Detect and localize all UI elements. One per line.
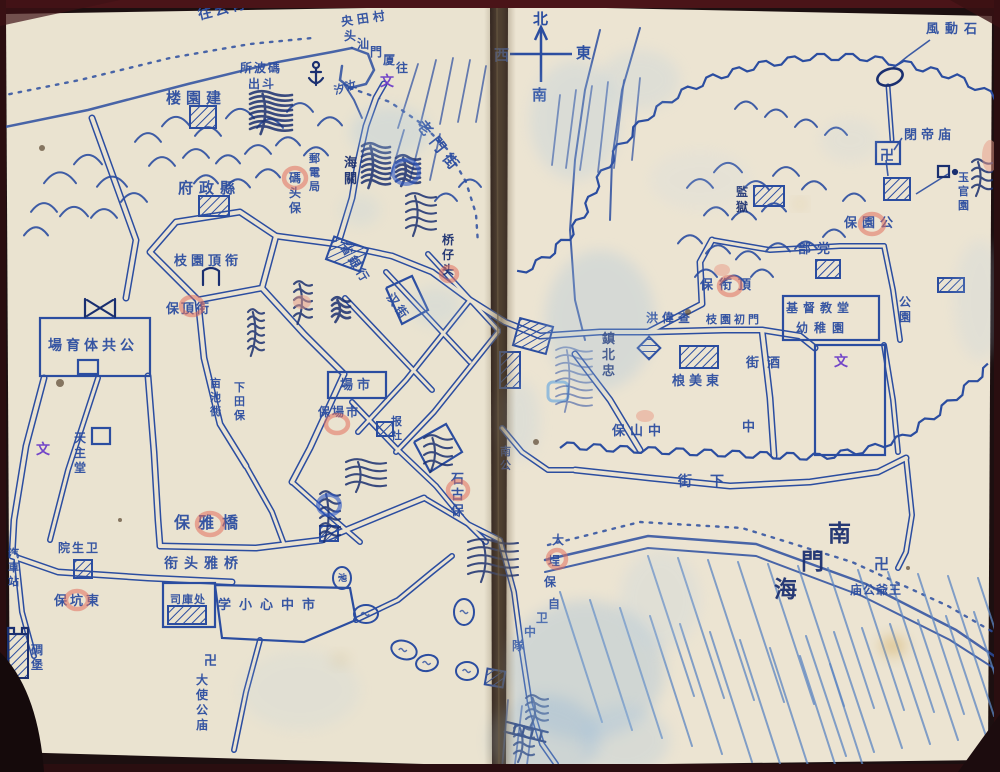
label-char: 卍: [204, 654, 217, 669]
zhongshan-bao-label: 保山中: [611, 423, 661, 439]
hatched-building: [816, 260, 840, 278]
label-char: 動: [945, 21, 958, 37]
label-char: 心: [260, 598, 273, 613]
paper-stain: [650, 150, 750, 210]
label-char: 桥: [224, 555, 239, 572]
swastika-icon-dashigong: 卍: [204, 654, 217, 669]
label-char: 大: [552, 532, 564, 547]
sports-ground-label: 場育体共公: [48, 337, 134, 354]
sqdot-icon-part: [953, 170, 957, 174]
matou-bao-label: 碼头保: [288, 170, 302, 215]
label-char: 保: [450, 503, 465, 519]
paper-stain: [580, 705, 670, 772]
label-char: 保: [843, 215, 858, 231]
label-char: 主: [74, 445, 86, 460]
label-char: 部: [798, 241, 811, 257]
hatched-building: [884, 178, 910, 200]
paper-stain: [545, 250, 655, 390]
label-char: 堂: [74, 460, 86, 475]
label-char: 公: [120, 338, 134, 354]
hatched-building: [754, 186, 784, 206]
label-char: 卫: [86, 541, 98, 555]
paper-stain: [820, 118, 880, 162]
label-char: 保: [165, 301, 180, 317]
label-char: 堂: [837, 300, 849, 315]
label-char: 門: [748, 313, 759, 326]
notebook-map-photo: 往云肖央田村头汕門厦往楼園建所波碼出斗文汐汝海關老門街郵電局碼头保府政縣桥仔头枝…: [0, 0, 1000, 772]
label-char: 庙: [196, 717, 208, 732]
label-char: 头: [344, 28, 356, 43]
paper-stain: [795, 200, 805, 208]
label-char: 酒: [767, 356, 780, 371]
label-char: 幼: [796, 320, 808, 335]
label-char: 衔: [225, 253, 238, 269]
red-smudge: [293, 295, 311, 309]
label-char: 海: [344, 155, 357, 171]
red-smudge: [636, 410, 654, 422]
label-char: 庙: [938, 127, 951, 143]
label-char: 門: [370, 45, 382, 59]
label-char: 官: [958, 184, 969, 198]
label-char: 池: [338, 572, 347, 584]
paper-stain: [600, 50, 680, 110]
label-char: 場: [340, 377, 353, 393]
road-fill: [160, 546, 256, 548]
label-char: 保: [611, 423, 626, 439]
yuguanyuan-label: 玉官園: [958, 171, 969, 212]
label-char: 市: [357, 377, 370, 393]
label-char: 南: [828, 521, 851, 547]
label-char: 碉: [31, 643, 43, 657]
label-char: 府: [178, 179, 193, 197]
label-char: 建: [206, 89, 222, 107]
label-char: 山: [630, 423, 643, 439]
label-char: 政: [199, 179, 215, 197]
park-label: 公園: [899, 295, 911, 324]
label-char: 街: [745, 355, 759, 371]
label-char: 小: [239, 598, 252, 613]
label-char: 桹: [672, 373, 686, 389]
label-char: 督: [803, 300, 815, 315]
label-char: 文: [36, 441, 51, 458]
label-char: 村: [372, 8, 386, 25]
police-station-label-row1: 所波碼: [240, 60, 280, 75]
label-char: 保: [173, 513, 191, 532]
label-char: 公: [899, 295, 911, 309]
swastika-icon-wangye: 卍: [874, 555, 889, 573]
label-char: 頂: [208, 254, 222, 269]
post-telegraph-office-label: 郵電局: [308, 151, 320, 193]
label-char: 石: [963, 22, 977, 37]
swastika-icon-guandi: 卍: [880, 148, 894, 164]
label-char: 中: [742, 419, 755, 435]
jianyuan-building-label: 楼園建: [166, 89, 222, 107]
label-char: 下: [234, 381, 245, 394]
label-char: 堡: [31, 657, 43, 672]
label-char: 風: [926, 22, 939, 37]
label-char: 衔: [164, 555, 178, 572]
red-smudge: [714, 264, 730, 276]
label-char: 碼: [267, 60, 280, 75]
label-char: 厦: [383, 52, 396, 67]
label-char: 車: [8, 560, 19, 574]
label-char: 爺: [875, 582, 889, 597]
xiatian-bao-label: 下田保: [233, 381, 246, 422]
label-char: 院: [58, 540, 70, 555]
label-char: 亩: [210, 376, 221, 390]
compass-east-label: 東: [576, 44, 591, 62]
label-char: 楼: [166, 89, 181, 107]
label-char: 獄: [735, 199, 748, 214]
label-char: 田: [234, 395, 245, 408]
wen-mark-harbor: 文: [380, 73, 395, 90]
label-char: 稚: [814, 320, 826, 335]
label-char: 报: [391, 414, 403, 428]
hatched-building: [168, 606, 206, 624]
hatched-building: [190, 106, 216, 128]
paper-speck: [39, 145, 45, 151]
label-char: 電: [309, 166, 320, 179]
label-char: 共: [102, 337, 116, 354]
label-char: 使: [195, 687, 209, 702]
label-char: 帝: [921, 127, 934, 143]
catholic-church-label: 天主堂: [74, 431, 87, 475]
health-clinic-label: 院生卫: [58, 540, 98, 555]
label-char: 所: [240, 60, 252, 75]
hand-drawn-town-map: 往云肖央田村头汕門厦往楼園建所波碼出斗文汐汝海關老門街郵電局碼头保府政縣桥仔头枝…: [0, 0, 1000, 772]
label-char: 初: [734, 312, 745, 326]
label-char: 往: [396, 60, 408, 75]
label-char: 大: [196, 672, 208, 687]
label-char: 枝: [705, 312, 718, 326]
label-char: 局: [308, 180, 320, 193]
label-char: 汕: [357, 36, 369, 51]
label-char: 生: [72, 540, 84, 555]
pillbox-label: 碉堡: [31, 643, 43, 672]
label-char: 保: [543, 574, 557, 589]
label-char: 雅: [204, 555, 218, 572]
label-char: 市: [302, 597, 315, 613]
label-char: 庫: [182, 592, 193, 606]
label-char: 偉: [662, 310, 674, 325]
label-char: 社: [390, 428, 402, 442]
label-char: 關: [344, 172, 357, 187]
label-char: 田: [356, 11, 370, 27]
paper-speck: [533, 439, 539, 445]
label-char: 斗: [262, 77, 274, 91]
label-char: 站: [8, 574, 19, 588]
label-char: 处: [193, 592, 206, 606]
label-char: 園: [186, 89, 201, 107]
label-char: 文: [834, 353, 849, 370]
label-char: 体: [84, 337, 99, 354]
label-char: 天: [74, 431, 87, 445]
label-char: 東: [706, 373, 719, 389]
label-char: 園: [958, 199, 969, 212]
guandi-temple-label: 閉帝庙: [904, 127, 951, 143]
label-char: 王: [889, 583, 901, 597]
paper-stain: [880, 636, 906, 656]
storehouse-label: 司庫处: [170, 592, 206, 606]
kindergarten-label: 幼稚園: [796, 320, 844, 335]
paper-stain: [340, 194, 380, 226]
label-char: 園: [191, 253, 204, 269]
label-char: 基: [785, 300, 799, 315]
label-char: 縣: [220, 179, 235, 197]
label-char: 桥: [442, 232, 455, 247]
hatched-building: [199, 196, 229, 216]
label-char: 出: [248, 76, 260, 91]
label-char: 碼: [288, 170, 301, 185]
label-char: 園: [720, 313, 731, 326]
label-char: 下: [710, 474, 724, 490]
paper-stain: [410, 286, 462, 326]
label-char: 教: [819, 300, 833, 315]
label-char: 公: [196, 703, 208, 717]
label-char: 門: [801, 549, 824, 575]
hatched-building: [680, 346, 718, 368]
label-char: 保: [288, 200, 302, 215]
label-char: 郵: [309, 151, 320, 165]
label-char: 汽: [8, 546, 19, 560]
page-fold: [484, 0, 516, 772]
fengdong-stone-label: 風動石: [926, 21, 977, 37]
label-char: 池: [210, 390, 221, 404]
wen-mark-park: 文: [834, 353, 849, 370]
compass-north-label: 北: [533, 10, 548, 28]
label-char: 学: [218, 597, 231, 613]
label-char: 玉: [958, 171, 969, 184]
label-char: 街: [677, 473, 692, 490]
label-char: 中: [648, 423, 661, 439]
label-char: 海: [774, 576, 797, 603]
label-char: 保: [233, 408, 246, 422]
dongmei-label: 桹美東: [672, 373, 719, 389]
label-char: 枝: [173, 253, 188, 269]
label-char: 卍: [880, 148, 894, 164]
label-char: 美: [689, 373, 703, 389]
label-char: 園: [832, 321, 844, 335]
label-char: 波: [254, 60, 267, 75]
wen-mark-church: 文: [36, 441, 51, 458]
label-char: 仔: [442, 247, 454, 262]
label-char: 育: [66, 337, 80, 354]
paper-stain: [620, 550, 700, 650]
label-char: 衖: [209, 404, 221, 418]
label-char: 党: [817, 241, 830, 257]
paper-speck: [685, 309, 691, 315]
paper-speck: [56, 379, 64, 387]
county-government-label: 府政縣: [178, 179, 235, 197]
hatched-building: [74, 560, 92, 578]
pond-label: 池: [338, 572, 347, 584]
dongkeng-bao-label: 保坑東: [53, 593, 99, 609]
label-char: 庙: [850, 582, 862, 597]
paper-speck: [906, 566, 910, 570]
paper-stain: [332, 654, 348, 666]
label-char: 場: [48, 337, 62, 354]
label-char: 头: [184, 555, 198, 572]
label-char: 中: [281, 597, 294, 613]
muchi-lane-label: 亩池衖: [209, 376, 221, 418]
paper-speck: [118, 518, 122, 522]
label-char: 保: [699, 277, 714, 293]
zhong-label: 中: [742, 419, 755, 435]
label-char: 司: [170, 593, 181, 606]
label-char: 市: [346, 404, 358, 419]
label-char: 文: [380, 73, 395, 90]
wangye-temple-label: 庙公爺王: [850, 582, 901, 597]
label-char: 卍: [874, 555, 889, 573]
bus-station-label: 汽車站: [8, 546, 19, 588]
label-char: 園: [899, 310, 911, 324]
paper-stain: [350, 106, 430, 158]
label-char: 閉: [904, 128, 917, 143]
label-char: 公: [863, 583, 875, 597]
